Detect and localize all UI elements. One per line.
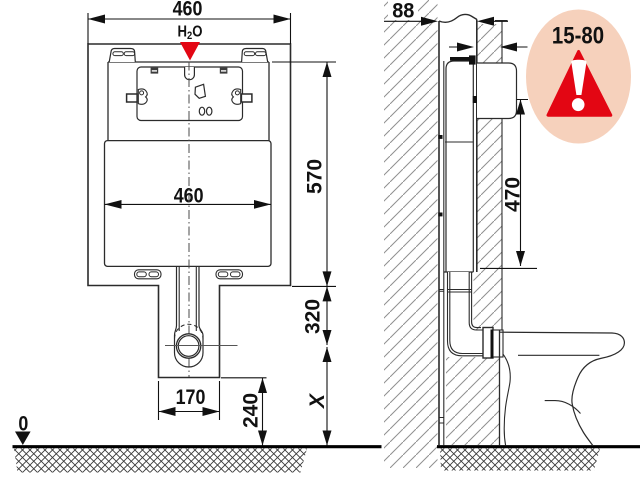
svg-text:570: 570: [304, 159, 327, 194]
svg-text:460: 460: [173, 0, 203, 21]
svg-text:X: X: [306, 392, 329, 409]
svg-text:240: 240: [240, 393, 263, 428]
svg-text:470: 470: [502, 177, 525, 212]
svg-text:15-80: 15-80: [552, 22, 604, 49]
svg-text:320: 320: [302, 299, 325, 334]
svg-text:88: 88: [392, 0, 414, 22]
svg-text:170: 170: [176, 385, 206, 409]
